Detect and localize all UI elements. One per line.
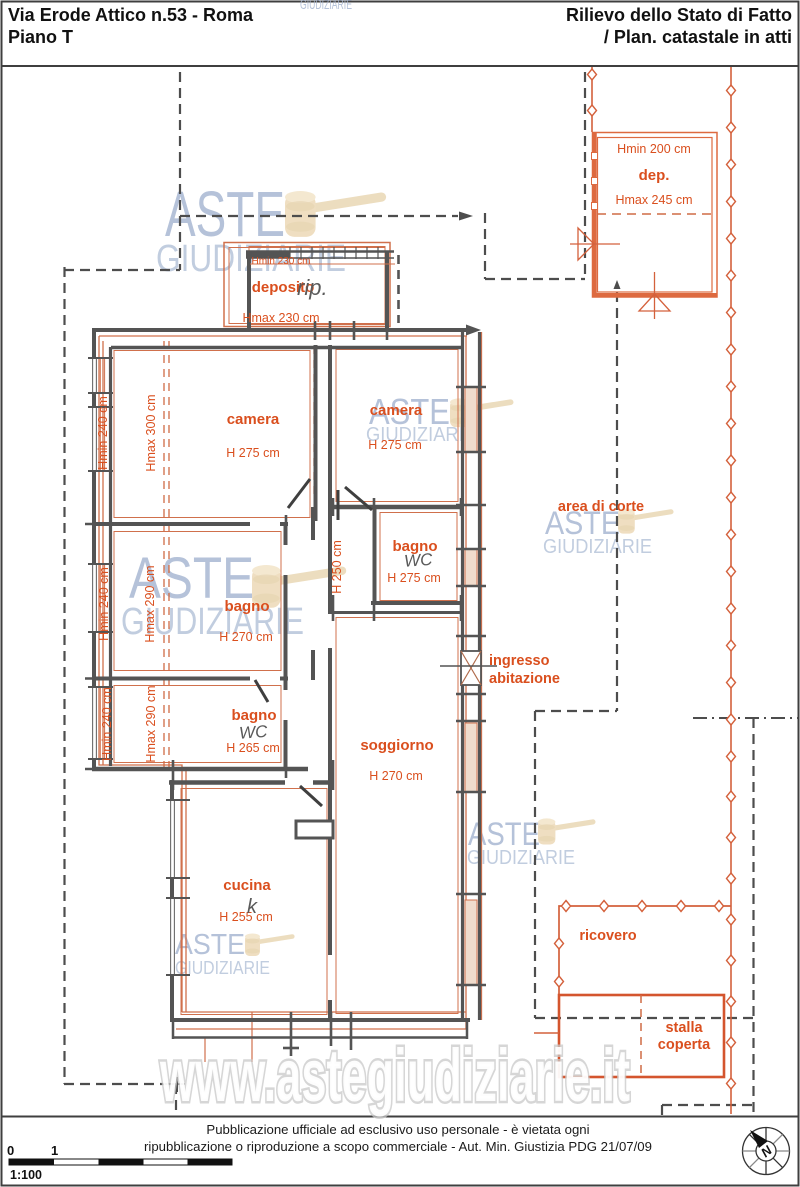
svg-text:H 255 cm: H 255 cm [219,910,273,924]
svg-text:Hmin 240 cm: Hmin 240 cm [96,396,110,470]
svg-text:GIUDIZIARIE: GIUDIZIARIE [467,847,575,869]
svg-text:Hmax 300 cm: Hmax 300 cm [144,394,158,471]
svg-text:stalla: stalla [665,1020,703,1036]
svg-text:ricovero: ricovero [579,928,636,944]
svg-text:Hmax 230 cm: Hmax 230 cm [242,311,319,325]
svg-text:bagno: bagno [225,598,270,615]
svg-text:ingresso: ingresso [489,653,550,669]
svg-text:/ Plan. catastale in atti: / Plan. catastale in atti [604,27,792,47]
svg-text:1: 1 [51,1143,58,1158]
svg-text:Via Erode Attico n.53 - Roma: Via Erode Attico n.53 - Roma [8,5,254,25]
svg-text:area di corte: area di corte [558,499,644,515]
svg-text:Hmax 290 cm: Hmax 290 cm [144,685,158,762]
svg-text:Piano T: Piano T [8,27,73,47]
svg-text:dep.: dep. [639,167,670,184]
svg-text:Hmax 245 cm: Hmax 245 cm [615,193,692,207]
svg-text:camera: camera [227,411,280,428]
svg-text:H 270 cm: H 270 cm [369,769,423,783]
svg-text:k: k [247,896,258,918]
svg-text:H 275 cm: H 275 cm [368,438,422,452]
svg-text:ripubblicazione o riproduzione: ripubblicazione o riproduzione a scopo c… [144,1139,652,1154]
svg-text:0: 0 [7,1143,14,1158]
svg-text:H 275 cm: H 275 cm [387,571,441,585]
svg-text:abitazione: abitazione [489,671,560,687]
svg-text:bagno: bagno [232,707,277,724]
svg-text:Hmin 240 cm: Hmin 240 cm [100,687,114,761]
svg-text:soggiorno: soggiorno [360,737,433,754]
svg-text:H 275 cm: H 275 cm [226,446,280,460]
svg-text:camera: camera [370,402,423,419]
svg-text:GIUDIZIARIE: GIUDIZIARIE [300,0,352,12]
svg-text:coperta: coperta [658,1037,711,1053]
svg-text:WC: WC [238,722,268,743]
svg-text:H 265 cm: H 265 cm [226,741,280,755]
svg-text:WC: WC [403,550,433,571]
svg-text:Hmax 290 cm: Hmax 290 cm [143,565,157,642]
svg-text:Hmin 230 cm: Hmin 230 cm [252,256,311,267]
svg-text:Hmin 200 cm: Hmin 200 cm [617,142,691,156]
svg-text:H 250 cm: H 250 cm [330,540,344,594]
svg-text:rip.: rip. [297,275,328,300]
svg-text:GIUDIZIARIE: GIUDIZIARIE [543,536,652,558]
svg-text:Rilievo dello Stato di Fatto: Rilievo dello Stato di Fatto [566,5,792,25]
svg-text:Hmin 240 cm: Hmin 240 cm [97,567,111,641]
svg-text:Pubblicazione ufficiale ad esc: Pubblicazione ufficiale ad esclusivo uso… [206,1122,589,1137]
svg-text:www.astegiudiziarie.it: www.astegiudiziarie.it [159,1034,630,1117]
svg-text:1:100: 1:100 [10,1168,42,1182]
svg-text:H 270 cm: H 270 cm [219,630,273,644]
svg-text:cucina: cucina [223,877,271,894]
